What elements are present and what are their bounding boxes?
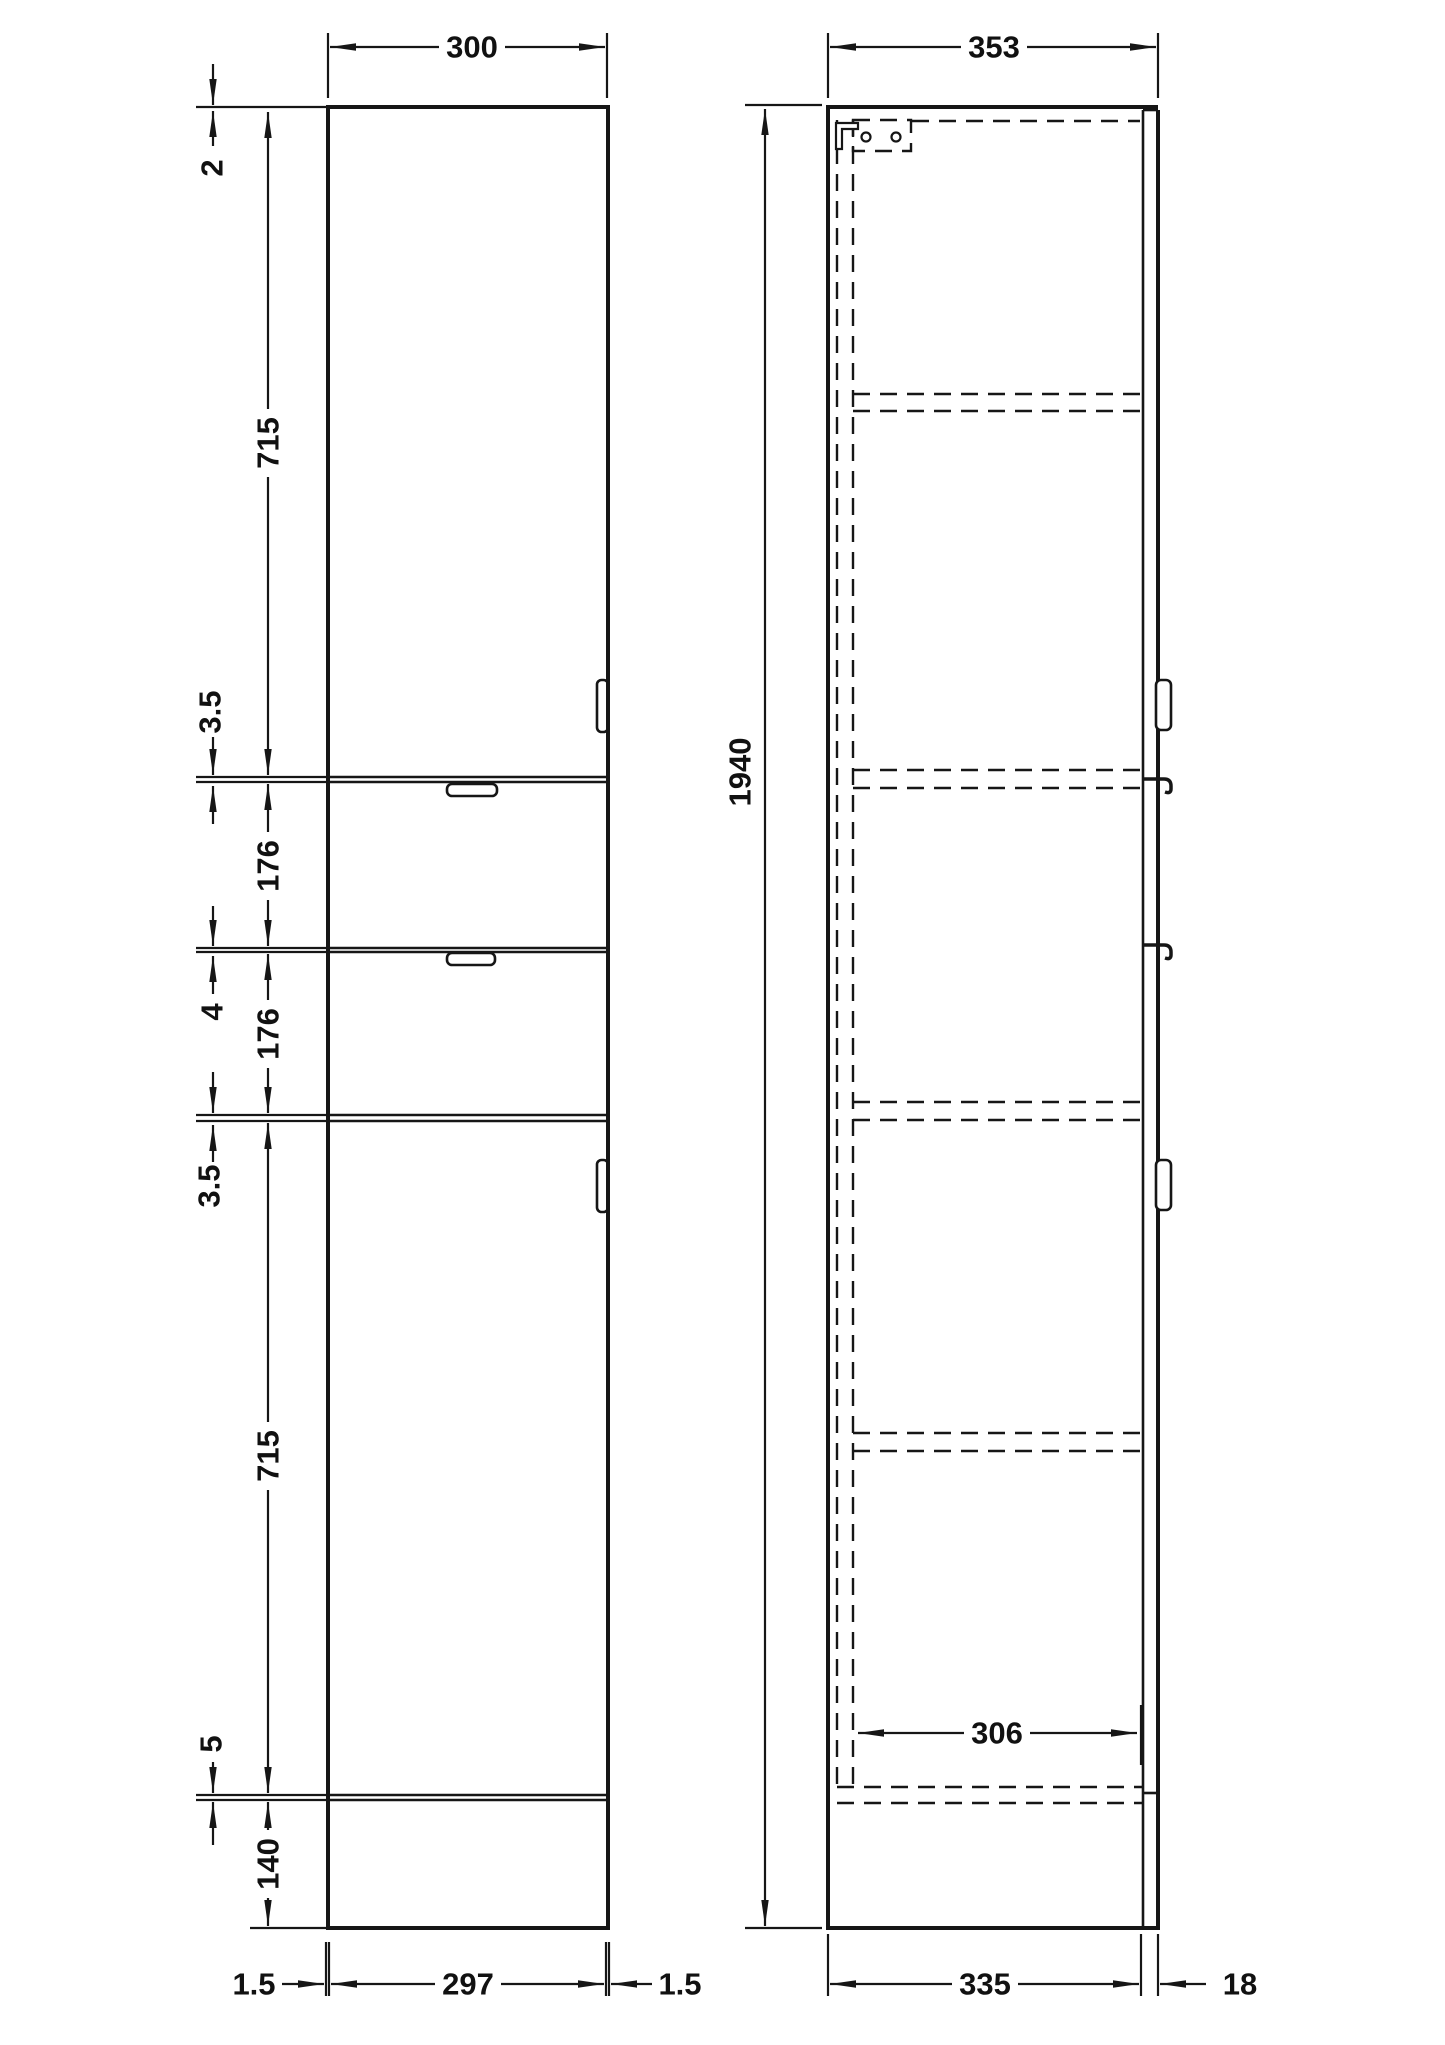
front-view xyxy=(326,107,610,1928)
upper-door-handle-profile xyxy=(1156,680,1171,730)
front-left-gap-label: 1.5 xyxy=(232,1967,275,2002)
internal-depth-dimension: 306 xyxy=(858,1705,1141,1765)
lower-door-handle-profile xyxy=(1156,1160,1171,1210)
hinge-plate-detail xyxy=(836,120,911,151)
gap-door-drawer-label: 3.5 xyxy=(193,690,228,733)
side-depth-dimension: 353 xyxy=(828,30,1158,99)
upper-drawer-height-label: 176 xyxy=(251,840,286,892)
plinth-height-label: 140 xyxy=(251,1838,286,1890)
gap-drawer-door-label: 3.5 xyxy=(192,1164,227,1207)
side-front-panel xyxy=(1143,110,1158,1928)
side-height-label: 1940 xyxy=(723,738,758,807)
gap-between-drawers-label: 4 xyxy=(195,1003,230,1021)
front-right-gap-label: 1.5 xyxy=(658,1967,701,2002)
side-bottom-dimensions: 335 18 xyxy=(828,1934,1257,2002)
side-outline xyxy=(826,107,1160,1928)
door-width-label: 297 xyxy=(442,1967,494,2002)
front-gap-dimensions: 2 3.5 4 3.5 5 xyxy=(192,64,230,1845)
side-height-dimension: 1940 xyxy=(723,105,823,1928)
internal-depth-label: 306 xyxy=(971,1716,1023,1751)
top-gap-label: 2 xyxy=(195,159,230,176)
back-panel-dashed xyxy=(837,120,1140,1787)
hinge-screw-hole xyxy=(892,133,901,142)
front-width-dimension: 300 xyxy=(328,30,607,99)
dimension-annotations: 300 353 1940 715 176 176 xyxy=(192,30,1258,2002)
front-outline xyxy=(326,107,610,1928)
drawing-canvas: 300 353 1940 715 176 176 xyxy=(0,0,1445,2045)
door-thickness-label: 18 xyxy=(1223,1967,1257,2002)
lower-door-height-label: 715 xyxy=(251,1430,286,1482)
front-panel-gap-lines xyxy=(328,777,608,1800)
lower-drawer-handle xyxy=(447,953,495,965)
lower-drawer-height-label: 176 xyxy=(251,1008,286,1060)
technical-drawing: 300 353 1940 715 176 176 xyxy=(0,0,1445,2045)
front-bottom-dimensions: 1.5 297 1.5 xyxy=(232,1942,701,2002)
front-width-label: 300 xyxy=(446,30,498,65)
upper-door-height-label: 715 xyxy=(251,417,286,469)
shelves-dashed xyxy=(837,394,1143,1803)
hinge-screw-hole xyxy=(862,133,871,142)
body-depth-label: 335 xyxy=(959,1967,1011,2002)
front-chain-dimensions: 715 176 176 715 140 xyxy=(251,112,286,1926)
side-view xyxy=(826,107,1171,1928)
side-depth-label: 353 xyxy=(968,30,1020,65)
hinge-bracket xyxy=(836,123,858,149)
upper-drawer-handle xyxy=(447,784,497,796)
plinth-gap-label: 5 xyxy=(194,1735,229,1752)
